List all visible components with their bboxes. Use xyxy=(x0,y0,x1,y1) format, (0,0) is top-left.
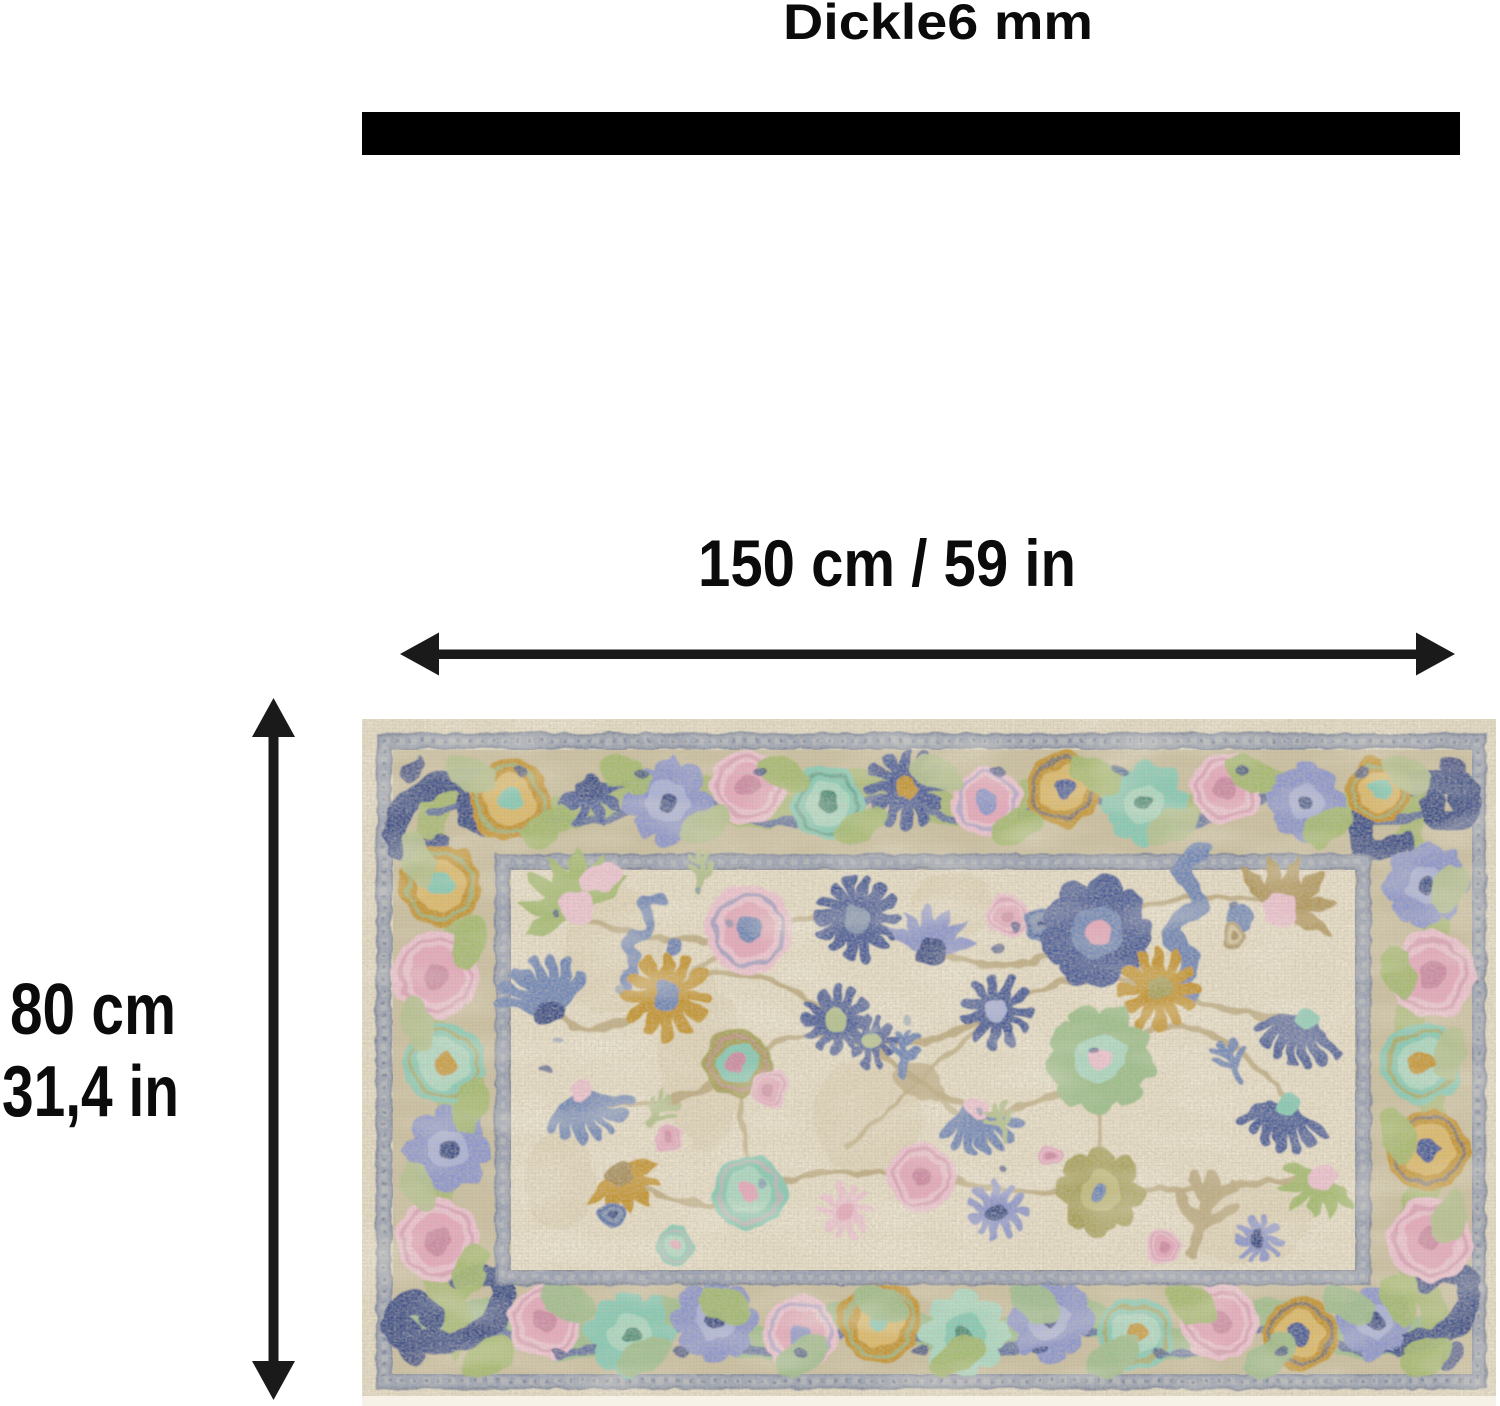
svg-text:31,4 in: 31,4 in xyxy=(2,1052,179,1132)
svg-text:80 cm: 80 cm xyxy=(10,970,176,1050)
svg-text:150 cm / 59 in: 150 cm / 59 in xyxy=(698,526,1076,600)
svg-text:Dickle6 mm: Dickle6 mm xyxy=(783,0,1093,50)
